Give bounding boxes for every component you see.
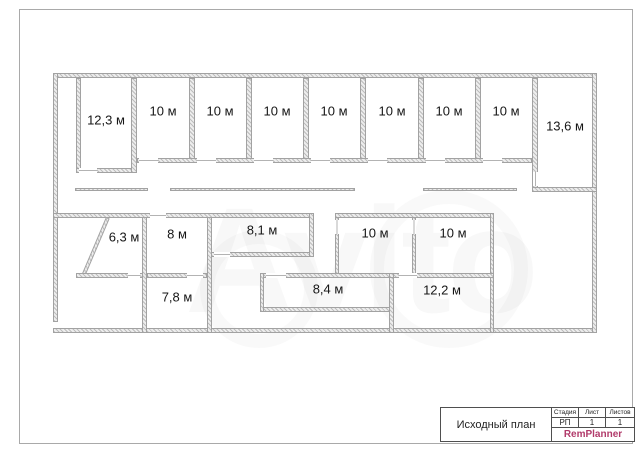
wall-room-8-right xyxy=(207,217,212,333)
door-opening xyxy=(214,252,230,257)
wall-room-8-4-bottom xyxy=(260,307,393,312)
room-label-10-9: 10 м xyxy=(439,226,466,241)
room-label-10-8: 10 м xyxy=(361,226,388,241)
wall-room-8-1-right xyxy=(309,213,314,257)
stamp-value-sheets: 1 xyxy=(606,418,634,427)
door-opening xyxy=(79,168,97,173)
room-label-10-7: 10 м xyxy=(492,104,519,119)
stamp-header-stage: Стадия xyxy=(552,408,579,417)
wall-divider xyxy=(303,78,309,163)
wall-divider xyxy=(475,78,481,163)
wall-room-6-3-diagonal xyxy=(81,217,109,277)
wall-room-8-4-left xyxy=(260,273,264,312)
remplanner-logo: RemPlanner xyxy=(552,428,634,441)
wall-outer-bottom xyxy=(53,328,597,333)
room-label-13-6: 13,6 м xyxy=(546,119,584,134)
stamp-header-sheet: Лист xyxy=(579,408,606,417)
room-label-10-6: 10 м xyxy=(435,104,462,119)
door-opening xyxy=(266,273,286,278)
stamp-header-row: Стадия Лист Листов xyxy=(552,408,634,418)
wall-room-12-2-left xyxy=(389,277,394,333)
door-opening xyxy=(187,273,203,278)
room-label-7-8: 7,8 м xyxy=(162,290,193,305)
door-opening xyxy=(311,158,330,163)
wall-divider xyxy=(418,78,424,163)
room-label-10-5: 10 м xyxy=(378,104,405,119)
wall-lower-top-left xyxy=(53,213,313,218)
stamp-value-stage: РП xyxy=(552,418,579,427)
room-label-8-4: 8,4 м xyxy=(313,282,344,297)
door-opening xyxy=(139,158,158,163)
door-opening xyxy=(197,158,216,163)
door-opening xyxy=(128,273,140,278)
door-opening xyxy=(150,213,166,218)
corridor-wall-segment xyxy=(170,188,355,191)
corridor-wall-segment xyxy=(423,188,517,191)
floor-plan: 12,3 м 10 м 10 м 10 м 10 м 10 м 10 м 10 … xyxy=(0,0,640,452)
room-label-10-4: 10 м xyxy=(320,104,347,119)
door-opening xyxy=(399,273,417,278)
wall-room-13-6-bottom xyxy=(532,187,597,192)
door-opening xyxy=(254,158,273,163)
wall-divider xyxy=(246,78,252,163)
door-opening xyxy=(426,158,445,163)
room-label-8-1: 8,1 м xyxy=(247,223,278,238)
drawing-title: Исходный план xyxy=(441,408,552,441)
stamp-value-sheet: 1 xyxy=(579,418,606,427)
stamp-header-sheets: Листов xyxy=(606,408,634,417)
door-opening xyxy=(412,220,416,234)
room-label-12-3: 12,3 м xyxy=(87,113,125,128)
room-label-8: 8 м xyxy=(167,227,187,242)
door-opening xyxy=(368,158,387,163)
title-block: Исходный план Стадия Лист Листов РП 1 1 … xyxy=(440,407,635,442)
wall-room-12-3-left xyxy=(76,78,81,173)
door-opening xyxy=(483,158,502,163)
stamp-value-row: РП 1 1 xyxy=(552,418,634,428)
wall-outer-left xyxy=(53,73,58,322)
corridor-wall-segment xyxy=(75,188,148,191)
title-block-stamp: Стадия Лист Листов РП 1 1 RemPlanner xyxy=(552,408,634,441)
room-label-10-1: 10 м xyxy=(149,104,176,119)
wall-outer-right xyxy=(592,73,597,333)
room-label-6-3: 6,3 м xyxy=(109,230,140,245)
wall-divider xyxy=(189,78,195,163)
door-opening xyxy=(533,172,538,186)
room-label-10-2: 10 м xyxy=(206,104,233,119)
room-label-12-2: 12,2 м xyxy=(423,283,461,298)
wall-divider xyxy=(360,78,366,163)
room-label-10-3: 10 м xyxy=(263,104,290,119)
door-opening xyxy=(335,220,339,234)
